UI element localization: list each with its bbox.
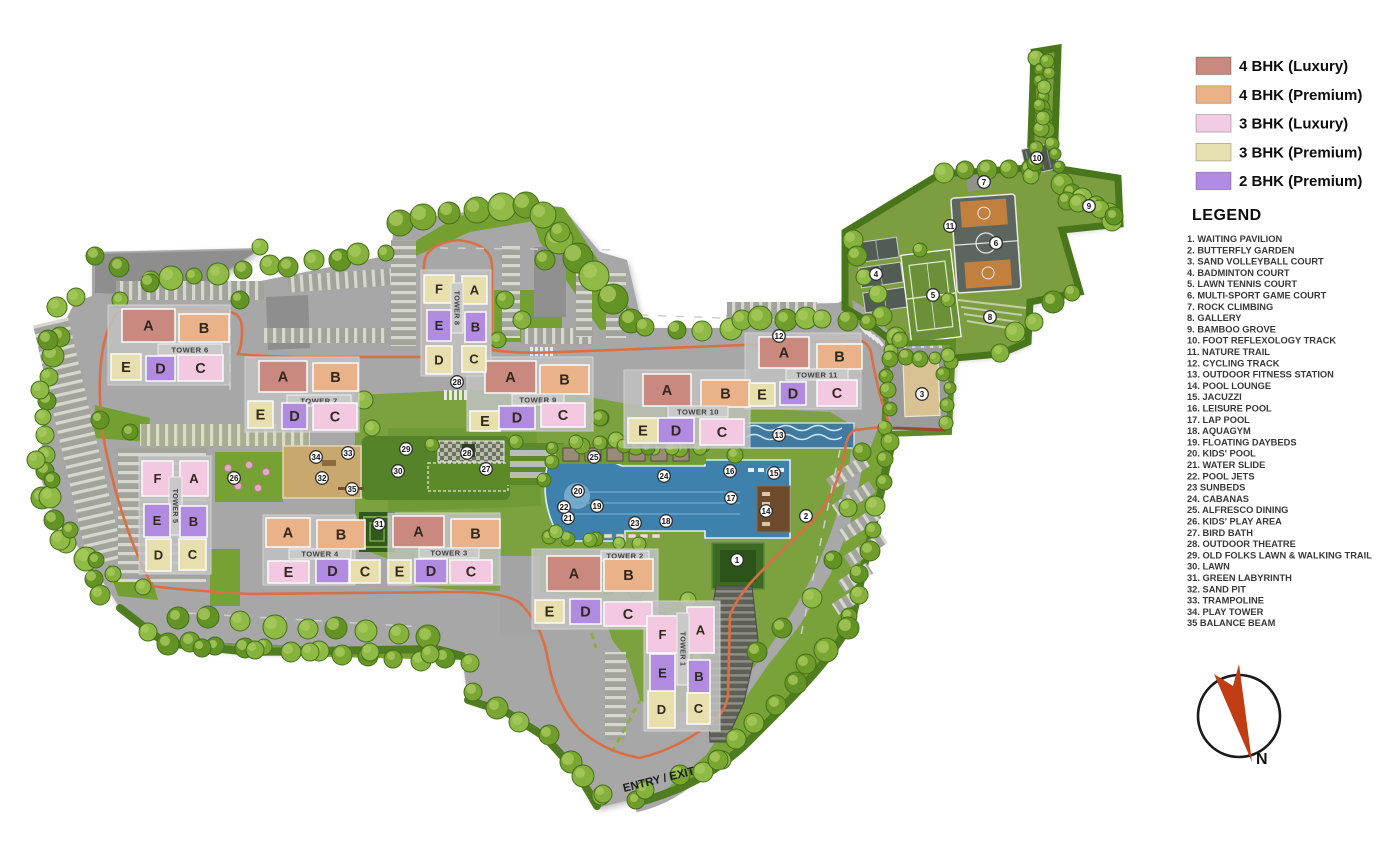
svg-text:13. OUTDOOR FITNESS STATION: 13. OUTDOOR FITNESS STATION	[1187, 370, 1334, 380]
svg-text:3. SAND VOLLEYBALL COURT: 3. SAND VOLLEYBALL COURT	[1187, 257, 1324, 267]
svg-text:13: 13	[775, 431, 784, 440]
svg-text:12: 12	[775, 332, 784, 341]
svg-text:29. OLD FOLKS LAWN & WALKING T: 29. OLD FOLKS LAWN & WALKING TRAIL	[1187, 550, 1372, 560]
svg-text:30. LAWN: 30. LAWN	[1187, 562, 1230, 572]
svg-text:F: F	[659, 627, 667, 642]
svg-text:15: 15	[770, 469, 779, 478]
svg-text:B: B	[623, 568, 633, 584]
svg-text:F: F	[435, 282, 443, 297]
svg-text:E: E	[545, 605, 555, 621]
svg-text:A: A	[470, 283, 480, 298]
svg-text:E: E	[658, 666, 667, 681]
svg-text:E: E	[395, 565, 405, 581]
svg-text:TOWER 8: TOWER 8	[452, 291, 461, 326]
svg-text:18. AQUAGYM: 18. AQUAGYM	[1187, 426, 1251, 436]
svg-text:30: 30	[394, 467, 403, 476]
svg-text:D: D	[434, 353, 443, 368]
svg-text:19. FLOATING DAYBEDS: 19. FLOATING DAYBEDS	[1187, 437, 1297, 447]
svg-text:C: C	[360, 565, 371, 581]
svg-text:C: C	[466, 565, 477, 581]
svg-text:A: A	[143, 319, 154, 335]
svg-text:9. BAMBOO GROVE: 9. BAMBOO GROVE	[1187, 324, 1276, 334]
svg-text:6: 6	[994, 239, 999, 248]
svg-text:26. KIDS' PLAY AREA: 26. KIDS' PLAY AREA	[1187, 517, 1282, 527]
svg-text:4: 4	[874, 270, 879, 279]
svg-text:TOWER 3: TOWER 3	[430, 549, 467, 558]
svg-text:C: C	[832, 386, 843, 402]
svg-text:20. KIDS' POOL: 20. KIDS' POOL	[1187, 449, 1256, 459]
svg-text:19: 19	[593, 502, 602, 511]
svg-text:B: B	[470, 527, 480, 543]
svg-text:34. PLAY TOWER: 34. PLAY TOWER	[1187, 607, 1264, 617]
svg-text:33: 33	[344, 449, 353, 458]
svg-text:E: E	[480, 414, 490, 430]
svg-text:25: 25	[590, 453, 599, 462]
svg-text:A: A	[696, 623, 706, 638]
svg-text:A: A	[283, 526, 294, 542]
svg-text:C: C	[558, 408, 569, 424]
svg-text:1: 1	[735, 556, 740, 565]
svg-text:5: 5	[931, 291, 936, 300]
svg-text:32. SAND PIT: 32. SAND PIT	[1187, 584, 1246, 594]
svg-text:24: 24	[660, 472, 669, 481]
svg-text:D: D	[154, 548, 163, 563]
svg-text:2. BUTTERFLY GARDEN: 2. BUTTERFLY GARDEN	[1187, 245, 1295, 255]
svg-text:11: 11	[946, 222, 955, 231]
svg-text:D: D	[327, 564, 337, 580]
svg-text:A: A	[662, 383, 673, 399]
svg-text:10: 10	[1033, 154, 1042, 163]
svg-text:35 BALANCE BEAM: 35 BALANCE BEAM	[1187, 618, 1276, 628]
svg-text:9: 9	[1087, 202, 1092, 211]
svg-text:15. JACUZZI: 15. JACUZZI	[1187, 392, 1242, 402]
svg-text:2: 2	[804, 512, 809, 521]
svg-text:B: B	[336, 528, 346, 544]
svg-text:8: 8	[988, 313, 993, 322]
svg-text:A: A	[505, 370, 516, 386]
svg-text:TOWER 5: TOWER 5	[171, 489, 180, 524]
svg-text:TOWER 11: TOWER 11	[796, 371, 838, 380]
svg-text:23 SUNBEDS: 23 SUNBEDS	[1187, 483, 1245, 493]
svg-text:B: B	[694, 669, 703, 684]
svg-text:25. ALFRESCO DINING: 25. ALFRESCO DINING	[1187, 505, 1288, 515]
svg-text:D: D	[289, 409, 299, 425]
svg-text:B: B	[559, 373, 569, 389]
svg-text:B: B	[199, 321, 209, 337]
svg-text:C: C	[469, 352, 479, 367]
svg-text:TOWER 10: TOWER 10	[677, 408, 719, 417]
svg-text:C: C	[330, 410, 341, 426]
svg-text:E: E	[256, 408, 266, 424]
svg-text:F: F	[154, 471, 162, 486]
svg-text:24. CABANAS: 24. CABANAS	[1187, 494, 1249, 504]
svg-text:31: 31	[375, 520, 384, 529]
svg-text:B: B	[189, 514, 198, 529]
svg-text:26: 26	[230, 474, 239, 483]
svg-text:2 BHK (Premium): 2 BHK (Premium)	[1239, 173, 1362, 190]
svg-text:7. ROCK CLIMBING: 7. ROCK CLIMBING	[1187, 302, 1273, 312]
svg-text:14: 14	[762, 507, 771, 516]
svg-text:14. POOL LOUNGE: 14. POOL LOUNGE	[1187, 381, 1271, 391]
svg-text:35: 35	[348, 485, 357, 494]
svg-text:3: 3	[920, 390, 925, 399]
svg-text:27: 27	[482, 465, 491, 474]
svg-text:22: 22	[560, 503, 569, 512]
svg-text:A: A	[413, 525, 424, 541]
svg-text:D: D	[671, 424, 681, 440]
svg-text:B: B	[720, 387, 730, 403]
svg-text:3 BHK (Luxury): 3 BHK (Luxury)	[1239, 116, 1348, 133]
svg-text:TOWER 4: TOWER 4	[301, 550, 339, 559]
svg-text:32: 32	[318, 474, 327, 483]
svg-text:A: A	[779, 346, 790, 362]
svg-text:E: E	[284, 565, 294, 581]
svg-text:34: 34	[312, 453, 321, 462]
svg-text:21. WATER SLIDE: 21. WATER SLIDE	[1187, 460, 1265, 470]
svg-text:16: 16	[726, 467, 735, 476]
svg-text:E: E	[435, 318, 444, 333]
svg-text:17: 17	[727, 494, 736, 503]
svg-text:20: 20	[574, 487, 583, 496]
svg-text:D: D	[788, 387, 798, 403]
svg-text:4 BHK (Luxury): 4 BHK (Luxury)	[1239, 58, 1348, 75]
svg-text:B: B	[330, 370, 340, 386]
svg-text:5. LAWN TENNIS COURT: 5. LAWN TENNIS COURT	[1187, 279, 1297, 289]
svg-text:A: A	[278, 370, 289, 386]
svg-text:C: C	[717, 425, 728, 441]
svg-text:21: 21	[564, 514, 573, 523]
svg-text:C: C	[623, 607, 634, 623]
svg-text:31. GREEN LABYRINTH: 31. GREEN LABYRINTH	[1187, 573, 1292, 583]
svg-text:27. BIRD BATH: 27. BIRD BATH	[1187, 528, 1253, 538]
svg-text:A: A	[569, 567, 580, 583]
svg-text:1. WAITING PAVILION: 1. WAITING PAVILION	[1187, 234, 1282, 244]
svg-text:C: C	[195, 361, 206, 377]
svg-text:33. TRAMPOLINE: 33. TRAMPOLINE	[1187, 596, 1264, 606]
svg-text:E: E	[121, 360, 131, 376]
svg-text:TOWER 6: TOWER 6	[171, 346, 208, 355]
svg-text:B: B	[834, 350, 844, 366]
svg-text:18: 18	[662, 517, 671, 526]
svg-text:D: D	[657, 702, 666, 717]
svg-text:17. LAP POOL: 17. LAP POOL	[1187, 415, 1250, 425]
svg-text:A: A	[189, 471, 199, 486]
svg-text:N: N	[1256, 751, 1268, 768]
svg-text:D: D	[580, 605, 590, 621]
svg-text:3 BHK (Premium): 3 BHK (Premium)	[1239, 144, 1362, 161]
svg-text:D: D	[155, 362, 165, 378]
svg-text:28: 28	[463, 449, 472, 458]
svg-text:22. POOL JETS: 22. POOL JETS	[1187, 471, 1255, 481]
svg-text:8. GALLERY: 8. GALLERY	[1187, 313, 1242, 323]
svg-text:16. LEISURE POOL: 16. LEISURE POOL	[1187, 404, 1272, 414]
svg-text:29: 29	[402, 445, 411, 454]
svg-text:11. NATURE TRAIL: 11. NATURE TRAIL	[1187, 347, 1270, 357]
svg-text:6. MULTI-SPORT GAME COURT: 6. MULTI-SPORT GAME COURT	[1187, 291, 1327, 301]
svg-text:E: E	[638, 424, 648, 440]
svg-text:C: C	[188, 547, 198, 562]
svg-text:28. OUTDOOR THEATRE: 28. OUTDOOR THEATRE	[1187, 539, 1296, 549]
svg-text:10. FOOT REFLEXOLOGY TRACK: 10. FOOT REFLEXOLOGY TRACK	[1187, 336, 1336, 346]
svg-text:28: 28	[453, 378, 462, 387]
svg-text:23: 23	[631, 519, 640, 528]
svg-text:LEGEND: LEGEND	[1192, 207, 1262, 224]
svg-text:7: 7	[982, 178, 987, 187]
svg-text:12. CYCLING TRACK: 12. CYCLING TRACK	[1187, 358, 1280, 368]
svg-text:B: B	[471, 320, 480, 335]
svg-text:D: D	[512, 411, 522, 427]
svg-text:E: E	[757, 388, 767, 404]
svg-text:4. BADMINTON COURT: 4. BADMINTON COURT	[1187, 268, 1290, 278]
svg-text:D: D	[426, 564, 436, 580]
svg-text:4 BHK (Premium): 4 BHK (Premium)	[1239, 87, 1362, 104]
svg-text:TOWER 1: TOWER 1	[678, 632, 687, 667]
svg-text:C: C	[694, 701, 704, 716]
svg-text:E: E	[153, 513, 162, 528]
